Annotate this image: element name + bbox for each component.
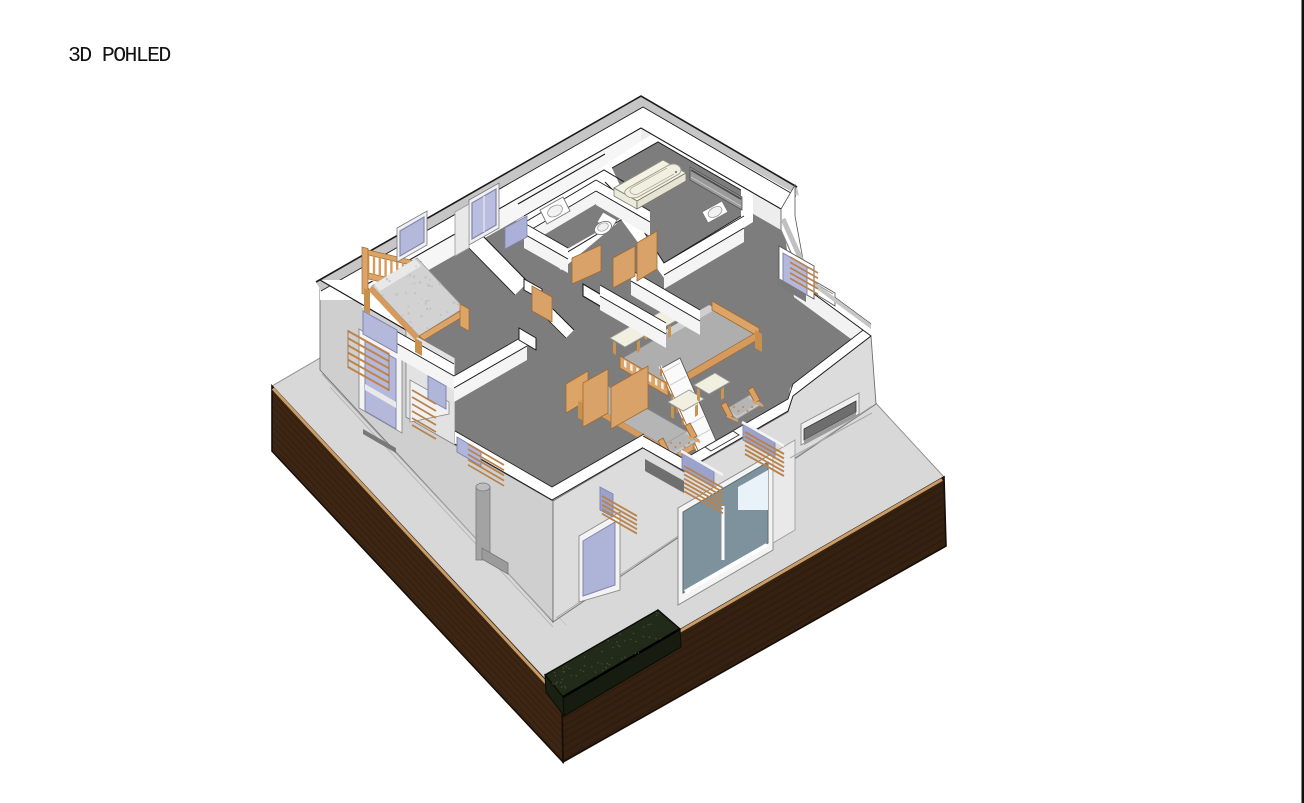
svg-text:3D POHLED: 3D POHLED bbox=[68, 44, 170, 68]
